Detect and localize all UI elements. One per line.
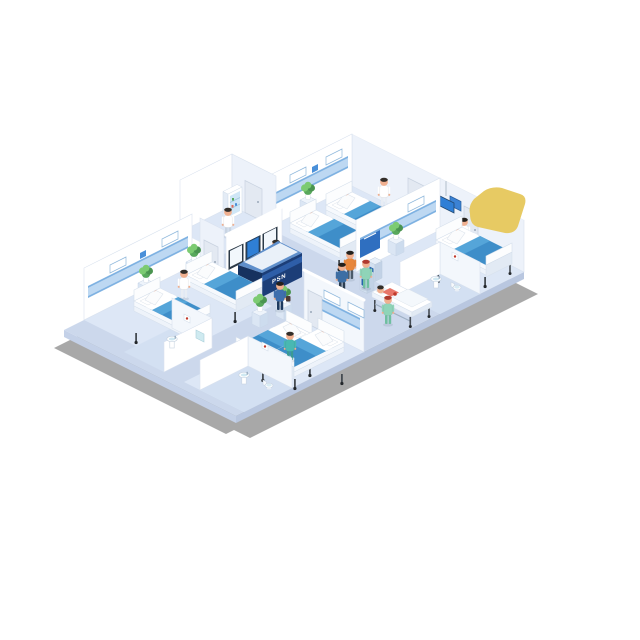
briefcase	[286, 296, 291, 302]
plant	[388, 222, 404, 256]
illustration-canvas: PSN	[0, 0, 640, 640]
hospital-isometric-scene: PSN	[0, 0, 640, 640]
plant	[252, 294, 268, 328]
